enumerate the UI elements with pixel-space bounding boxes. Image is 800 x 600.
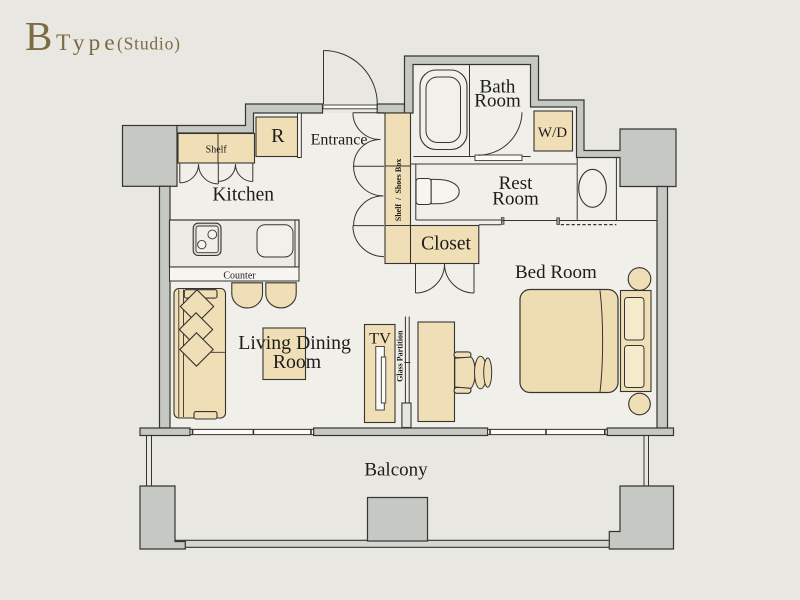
svg-text:Room: Room	[492, 188, 539, 209]
svg-text:Room: Room	[273, 351, 322, 373]
svg-text:Bed Room: Bed Room	[515, 262, 597, 283]
svg-text:Type: Type	[56, 30, 119, 56]
svg-text:Room: Room	[474, 91, 521, 112]
svg-text:Kitchen: Kitchen	[212, 185, 274, 206]
svg-text:Shelf: Shelf	[206, 144, 228, 155]
svg-text:Shelf / Shoes Box: Shelf / Shoes Box	[394, 159, 403, 221]
svg-text:TV: TV	[369, 329, 391, 348]
svg-text:Entrance: Entrance	[311, 132, 368, 149]
svg-text:W/D: W/D	[538, 125, 567, 141]
svg-text:Balcony: Balcony	[364, 460, 428, 481]
svg-text:B: B	[25, 13, 52, 59]
svg-text:(Studio): (Studio)	[117, 34, 181, 54]
svg-text:R: R	[271, 125, 285, 147]
svg-text:Glass Partition: Glass Partition	[396, 330, 405, 382]
svg-text:Counter: Counter	[223, 270, 256, 281]
svg-text:Closet: Closet	[421, 233, 471, 254]
